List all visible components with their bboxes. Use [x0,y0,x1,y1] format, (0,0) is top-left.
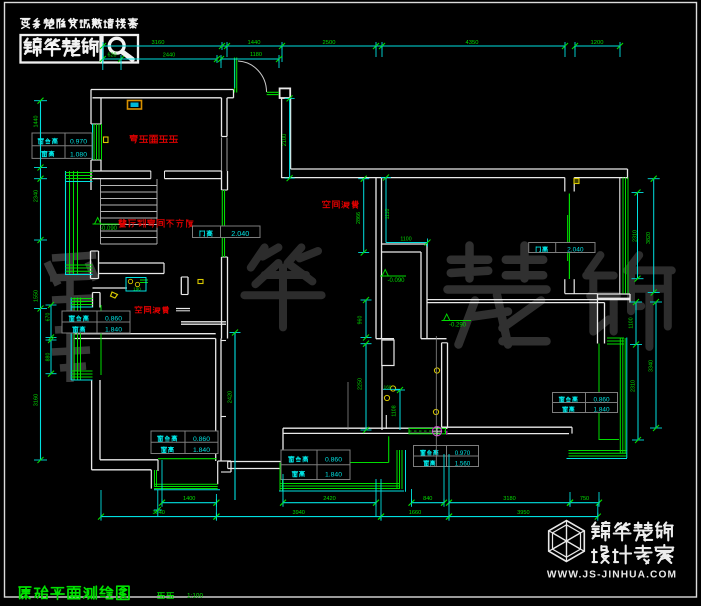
svg-text:880: 880 [46,353,52,362]
svg-text:1.840: 1.840 [105,327,122,334]
svg-text:1440: 1440 [248,40,261,46]
svg-text:620: 620 [108,53,117,59]
svg-text:1100: 1100 [628,317,634,328]
svg-text:0.860: 0.860 [193,436,210,443]
svg-text:1550: 1550 [33,290,39,302]
svg-text:2340: 2340 [33,190,39,202]
svg-text:3180: 3180 [503,496,515,502]
svg-text:1100: 1100 [400,237,411,243]
svg-text:0.860: 0.860 [105,316,122,323]
svg-text:0.860: 0.860 [594,397,610,404]
svg-text:1110: 1110 [385,209,391,220]
svg-text:750: 750 [580,496,589,502]
svg-text:960: 960 [358,316,364,325]
svg-text:1400: 1400 [183,496,195,502]
svg-text:1.840: 1.840 [193,447,210,454]
svg-text:1.560: 1.560 [455,460,471,467]
svg-text:1660: 1660 [409,510,421,516]
svg-text:840: 840 [423,496,432,502]
svg-text:1.080: 1.080 [70,151,87,158]
svg-text:3340: 3340 [648,360,654,372]
svg-text:2310: 2310 [631,380,637,392]
svg-text:2310: 2310 [632,230,638,242]
svg-text:3950: 3950 [517,510,529,516]
svg-text:3940: 3940 [292,510,304,516]
svg-text:2440: 2440 [163,53,175,59]
svg-text:2.040: 2.040 [567,247,584,254]
svg-text:1200: 1200 [591,40,604,46]
svg-text:1.840: 1.840 [594,407,610,414]
svg-text:3040: 3040 [152,510,164,516]
svg-text:4350: 4350 [466,40,479,46]
svg-text:1:100: 1:100 [187,593,203,600]
svg-text:2500: 2500 [323,40,336,46]
svg-text:2866: 2866 [356,212,362,224]
svg-text:1.840: 1.840 [325,471,342,478]
svg-text:0.970: 0.970 [455,450,471,457]
svg-text:-0.290: -0.290 [449,323,467,329]
svg-text:1108: 1108 [391,405,397,416]
svg-text:0.970: 0.970 [70,139,87,146]
svg-text:2100: 2100 [282,134,288,146]
svg-text:2.040: 2.040 [231,229,249,238]
svg-text:2420: 2420 [228,391,234,403]
svg-text:WWW.JS-JINHUA.COM: WWW.JS-JINHUA.COM [547,570,677,581]
svg-text:670: 670 [46,313,52,322]
svg-text:0.860: 0.860 [325,457,342,464]
svg-text:2420: 2420 [323,496,335,502]
svg-text:1440: 1440 [33,116,39,128]
svg-text:-0.090: -0.090 [387,278,405,284]
svg-text:3820: 3820 [646,232,652,244]
svg-text:3160: 3160 [33,394,39,406]
svg-text:2250: 2250 [358,378,364,390]
svg-text:1180: 1180 [250,52,262,58]
svg-text:160: 160 [384,385,392,390]
svg-text:3160: 3160 [152,40,165,46]
svg-text:-0.090: -0.090 [100,226,118,232]
svg-text:190: 190 [133,287,141,292]
